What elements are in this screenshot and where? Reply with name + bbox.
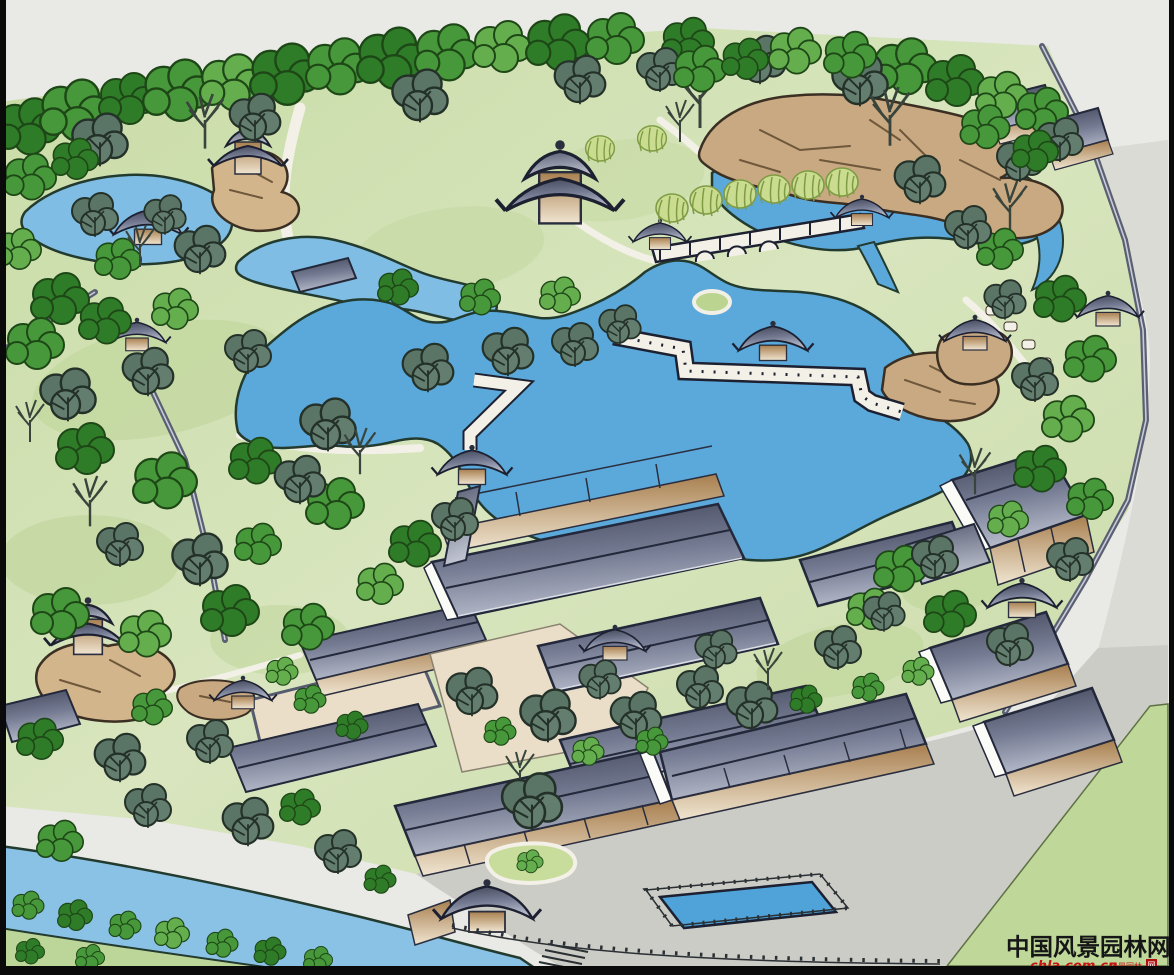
- garden-master-plan: 中国风景园林网 chla.com.cn 风景园林 网: [0, 0, 1174, 975]
- watermark-site-name: 中国风景园林网: [1006, 933, 1171, 961]
